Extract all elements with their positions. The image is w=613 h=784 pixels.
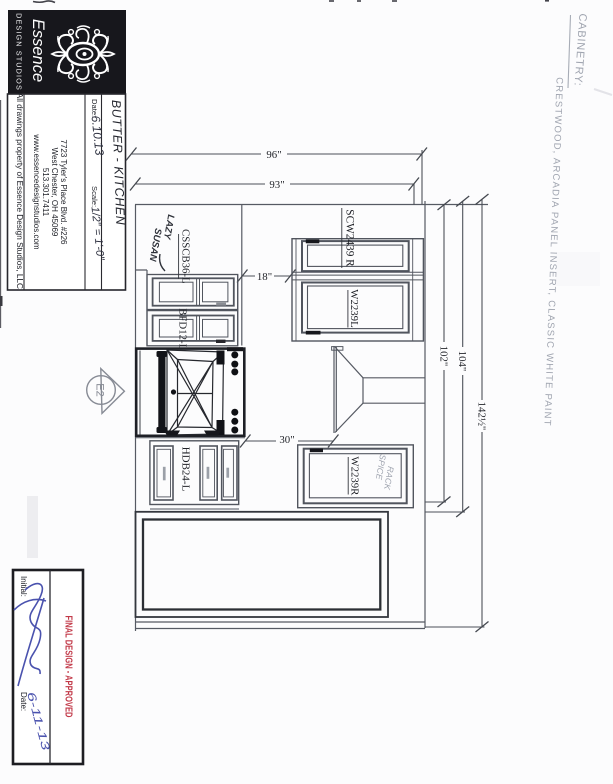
svg-text:W2239R: W2239R	[348, 456, 360, 496]
svg-text:West Chester, OH 45069: West Chester, OH 45069	[50, 148, 59, 237]
svg-text:7723 Tyler's Place Blvd. #226: 7723 Tyler's Place Blvd. #226	[59, 140, 68, 246]
svg-text:CSSCB36-L: CSSCB36-L	[179, 229, 191, 284]
svg-text:HDB24-L: HDB24-L	[179, 447, 191, 492]
svg-text:W2239L: W2239L	[348, 289, 360, 327]
svg-text:www.essencedesignstudios.com: www.essencedesignstudios.com	[32, 133, 41, 250]
svg-text:Initial:: Initial:	[19, 576, 28, 597]
svg-text:142½": 142½"	[476, 402, 488, 431]
svg-text:All drawings property of Essen: All drawings property of Essence Design …	[15, 93, 24, 291]
svg-text:DESIGN STUDIOS: DESIGN STUDIOS	[15, 13, 24, 91]
svg-text:102": 102"	[438, 346, 450, 367]
svg-text:93": 93"	[269, 179, 284, 191]
svg-text:E2: E2	[93, 383, 105, 396]
svg-text:BFD12-L: BFD12-L	[177, 308, 189, 350]
svg-text:96": 96"	[266, 149, 281, 161]
svg-text:FINAL DESIGN - APPROVED: FINAL DESIGN - APPROVED	[63, 616, 74, 718]
svg-text:513.301.7411: 513.301.7411	[41, 168, 50, 217]
svg-text:Scale:: Scale:	[90, 186, 99, 207]
svg-text:SCW2439 R: SCW2439 R	[344, 209, 356, 267]
svg-text:30": 30"	[279, 434, 294, 446]
svg-text:104": 104"	[456, 351, 468, 372]
svg-text:Essence: Essence	[29, 19, 47, 82]
svg-text:18": 18"	[257, 271, 272, 283]
